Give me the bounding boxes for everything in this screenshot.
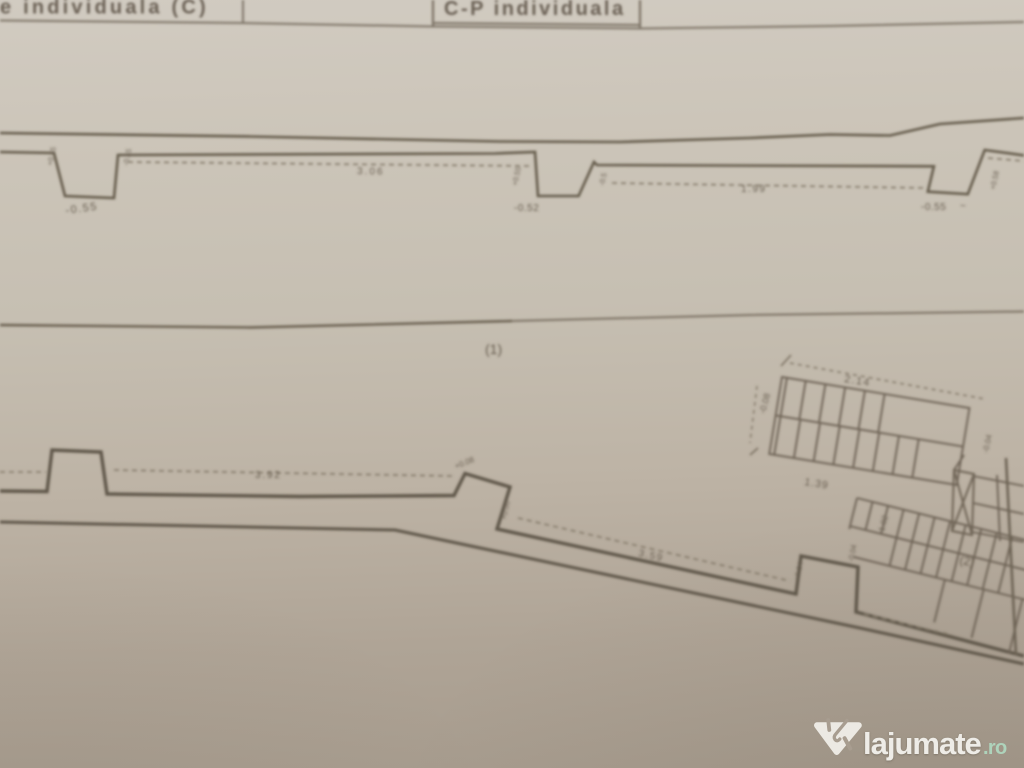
svg-text:1.02: 1.02 — [876, 514, 890, 533]
svg-text:-0.04: -0.04 — [981, 433, 994, 453]
svg-text:1.39: 1.39 — [804, 476, 830, 492]
svg-text:+0.08: +0.08 — [453, 455, 476, 471]
svg-text:(1): (1) — [485, 341, 502, 357]
svg-text:1.99: 1.99 — [741, 184, 766, 195]
svg-text:2.14: 2.14 — [844, 373, 872, 389]
svg-text:+0.58: +0.58 — [988, 170, 1001, 190]
svg-text:3.92: 3.92 — [255, 470, 282, 481]
svg-text:.ro: .ro — [983, 737, 1007, 759]
svg-text:~: ~ — [960, 201, 966, 212]
svg-text:+0.00: +0.00 — [499, 500, 512, 520]
svg-text:-0.55: -0.55 — [921, 202, 946, 213]
svg-text:-0.5: -0.5 — [597, 172, 608, 187]
svg-text:+0.55: +0.55 — [510, 166, 523, 186]
svg-text:3.06: 3.06 — [357, 166, 385, 178]
svg-text:-0.08: -0.08 — [757, 392, 772, 414]
svg-text:e individuala (C): e individuala (C) — [0, 0, 209, 19]
svg-text:-0.52: -0.52 — [514, 203, 539, 214]
svg-text:lajumate: lajumate — [863, 726, 982, 761]
svg-text:-0.04: -0.04 — [846, 544, 858, 563]
svg-text:-0.55: -0.55 — [65, 201, 99, 217]
svg-text:C-P individuala: C-P individuala — [444, 0, 626, 20]
svg-text:+0.04: +0.04 — [792, 561, 805, 581]
svg-text:(2): (2) — [959, 553, 976, 569]
svg-text:-0.55: -0.55 — [121, 148, 133, 167]
